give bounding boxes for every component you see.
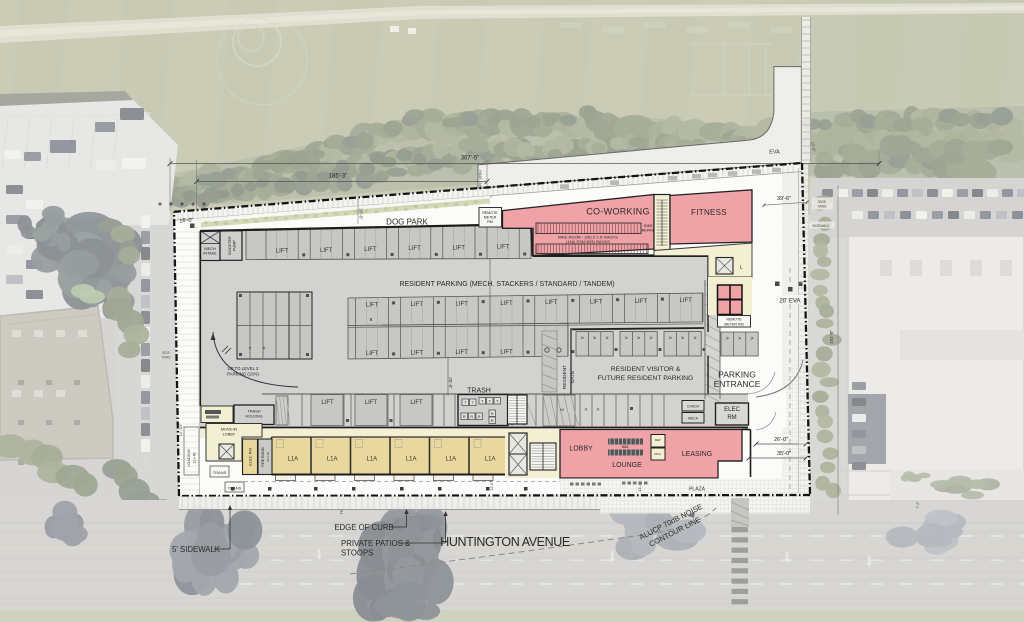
- svg-text:HUNTINGTON AVENUE: HUNTINGTON AVENUE: [440, 535, 570, 549]
- svg-text:LIFT: LIFT: [410, 400, 423, 406]
- svg-text:7'-2": 7'-2": [916, 501, 920, 509]
- svg-text:PARKING: PARKING: [718, 370, 756, 380]
- svg-text:20' EVA: 20' EVA: [779, 299, 800, 305]
- svg-text:>: >: [738, 336, 741, 342]
- svg-text:LIFT: LIFT: [408, 246, 421, 252]
- svg-text:FIRE ROOM: FIRE ROOM: [261, 447, 265, 466]
- svg-text:191'-8": 191'-8": [829, 330, 834, 344]
- svg-text:LIFT: LIFT: [366, 351, 379, 357]
- svg-text:L1A: L1A: [485, 457, 496, 463]
- svg-text:20'-0": 20'-0": [359, 208, 364, 220]
- svg-text:LIFT: LIFT: [366, 303, 379, 309]
- svg-text:L1A: L1A: [327, 457, 338, 463]
- svg-text:YARD: YARD: [817, 205, 827, 209]
- svg-text:SIDE: SIDE: [818, 200, 827, 204]
- svg-text:COACH: COACH: [687, 405, 700, 409]
- svg-text:LIFT: LIFT: [500, 301, 513, 307]
- svg-text:12 x 26: 12 x 26: [266, 452, 270, 462]
- svg-text:LOUNGE: LOUNGE: [612, 462, 642, 469]
- svg-text:PLAZA: PLAZA: [689, 487, 706, 493]
- svg-text:ENTRANCE: ENTRANCE: [714, 379, 761, 389]
- svg-text:T: T: [249, 346, 252, 351]
- svg-text:LIFT: LIFT: [321, 400, 334, 406]
- svg-text:MECH: MECH: [204, 247, 215, 251]
- svg-text:TRASH: TRASH: [467, 387, 491, 394]
- svg-text:LIFT: LIFT: [635, 299, 648, 305]
- svg-text:RM: RM: [727, 415, 736, 421]
- svg-text:PRIVATE PATIOS &: PRIVATE PATIOS &: [341, 539, 411, 548]
- svg-text:185'-3": 185'-3": [329, 174, 348, 180]
- svg-text:>: >: [581, 336, 584, 342]
- svg-text:LIFT: LIFT: [364, 247, 377, 253]
- svg-text:>: >: [585, 407, 588, 413]
- svg-text:METER: METER: [484, 216, 497, 220]
- svg-text:YARD: YARD: [161, 356, 171, 360]
- svg-text:FITNESS: FITNESS: [691, 208, 727, 217]
- svg-text:>: >: [649, 336, 652, 342]
- svg-text:>: >: [637, 336, 640, 342]
- svg-text:TRANS: TRANS: [228, 486, 242, 491]
- svg-text:>: >: [669, 336, 672, 342]
- svg-text:>: >: [593, 336, 596, 342]
- svg-text:39'-6": 39'-6": [777, 196, 791, 202]
- svg-text:SIDE: SIDE: [162, 351, 171, 355]
- svg-text:26'-0": 26'-0": [774, 437, 788, 443]
- svg-text:L1A: L1A: [445, 457, 456, 463]
- svg-text:LIFT: LIFT: [500, 349, 513, 355]
- svg-text:LIFT: LIFT: [545, 300, 558, 306]
- svg-text:LIFT: LIFT: [365, 400, 378, 406]
- svg-text:5' SIDEWALK: 5' SIDEWALK: [172, 545, 221, 554]
- svg-text:BIKE: BIKE: [644, 224, 653, 228]
- svg-text:RESIDENT PARKING (MECH. STACKE: RESIDENT PARKING (MECH. STACKERS / STAND…: [399, 281, 614, 288]
- svg-text:L: L: [740, 265, 743, 271]
- svg-text:LIFT: LIFT: [411, 351, 424, 357]
- svg-text:16'-0": 16'-0": [179, 217, 193, 224]
- svg-text:INTAKE: INTAKE: [203, 252, 217, 256]
- svg-text:STOOPS: STOOPS: [341, 549, 373, 558]
- svg-text:L1A: L1A: [366, 457, 377, 463]
- svg-text:R: R: [491, 418, 494, 423]
- svg-text:DOG PARK: DOG PARK: [386, 218, 428, 227]
- svg-text:LOBBY: LOBBY: [569, 446, 593, 453]
- svg-text:L1A: L1A: [406, 457, 417, 463]
- svg-text:REMOTE: REMOTE: [482, 211, 498, 215]
- svg-text:RESIDENT VISITOR &: RESIDENT VISITOR &: [611, 366, 681, 373]
- svg-text:>: >: [625, 336, 628, 342]
- svg-text:EDGE OF CURB: EDGE OF CURB: [334, 523, 393, 532]
- svg-text:MOVE-IN: MOVE-IN: [221, 428, 238, 432]
- svg-text:LOADING: LOADING: [186, 449, 191, 467]
- svg-text:LIFT: LIFT: [680, 298, 693, 304]
- svg-text:HOLDING: HOLDING: [245, 415, 262, 419]
- svg-text:R: R: [478, 414, 481, 419]
- svg-text:>: >: [605, 336, 608, 342]
- svg-text:>: >: [681, 336, 684, 342]
- svg-text:LIFT: LIFT: [320, 248, 333, 254]
- svg-text:ELEC RM: ELEC RM: [248, 448, 253, 466]
- svg-text:MECA: MECA: [688, 417, 699, 421]
- svg-text:LIFT: LIFT: [276, 249, 289, 255]
- svg-text:MAIL: MAIL: [622, 445, 630, 449]
- svg-text:>: >: [693, 336, 696, 342]
- svg-text:CO-WORKING: CO-WORKING: [586, 207, 650, 217]
- svg-text:35'-0": 35'-0": [777, 451, 791, 457]
- svg-text:PARKING (15%): PARKING (15%): [227, 372, 259, 377]
- svg-text:PUMP: PUMP: [233, 240, 237, 251]
- svg-text:RM: RM: [487, 220, 493, 224]
- svg-text:13'-0": 13'-0": [490, 481, 494, 491]
- svg-text:LIFT: LIFT: [453, 245, 466, 251]
- svg-text:R: R: [463, 414, 466, 419]
- svg-text:LIFT: LIFT: [456, 350, 469, 356]
- svg-text:LOBBY: LOBBY: [223, 433, 236, 437]
- svg-text:SIDEWALK: SIDEWALK: [812, 224, 830, 228]
- svg-text:13'-4": 13'-4": [638, 482, 642, 492]
- svg-text:TRANS: TRANS: [213, 470, 227, 475]
- svg-text:FUTURE RESIDENT PARKING: FUTURE RESIDENT PARKING: [598, 375, 694, 382]
- svg-text:RET.: RET.: [655, 438, 662, 442]
- svg-text:LIFT: LIFT: [456, 301, 469, 307]
- svg-text:LIFT: LIFT: [497, 245, 510, 251]
- svg-text:EVA: EVA: [769, 150, 780, 156]
- svg-text:T: T: [263, 346, 266, 351]
- svg-text:(116) STACKED RACKS: (116) STACKED RACKS: [566, 239, 610, 244]
- svg-text:>: >: [750, 336, 753, 342]
- svg-text:25'-0": 25'-0": [448, 377, 453, 389]
- svg-text:GATE: GATE: [570, 371, 576, 384]
- svg-text:R: R: [470, 414, 473, 419]
- svg-text:ELEC: ELEC: [724, 407, 740, 413]
- svg-text:PKG.: PKG.: [654, 452, 661, 456]
- svg-text:METER RM: METER RM: [724, 322, 743, 326]
- svg-text:R: R: [491, 411, 494, 416]
- svg-text:>: >: [597, 407, 600, 413]
- svg-text:M: M: [560, 407, 563, 412]
- svg-text:LIFT: LIFT: [590, 300, 603, 306]
- svg-text:RESIDENT: RESIDENT: [562, 365, 568, 389]
- svg-text:LEASING: LEASING: [682, 451, 712, 458]
- svg-text:367'-5": 367'-5": [461, 156, 480, 162]
- svg-text:LIFT: LIFT: [411, 302, 424, 308]
- svg-text:>: >: [726, 336, 729, 342]
- svg-text:TRASH: TRASH: [248, 410, 261, 414]
- svg-text:L1A: L1A: [287, 457, 298, 463]
- svg-text:REMOTE: REMOTE: [726, 318, 742, 322]
- svg-text:BOOSTER: BOOSTER: [228, 236, 232, 255]
- svg-text:UP TO LEVEL 2: UP TO LEVEL 2: [228, 366, 260, 371]
